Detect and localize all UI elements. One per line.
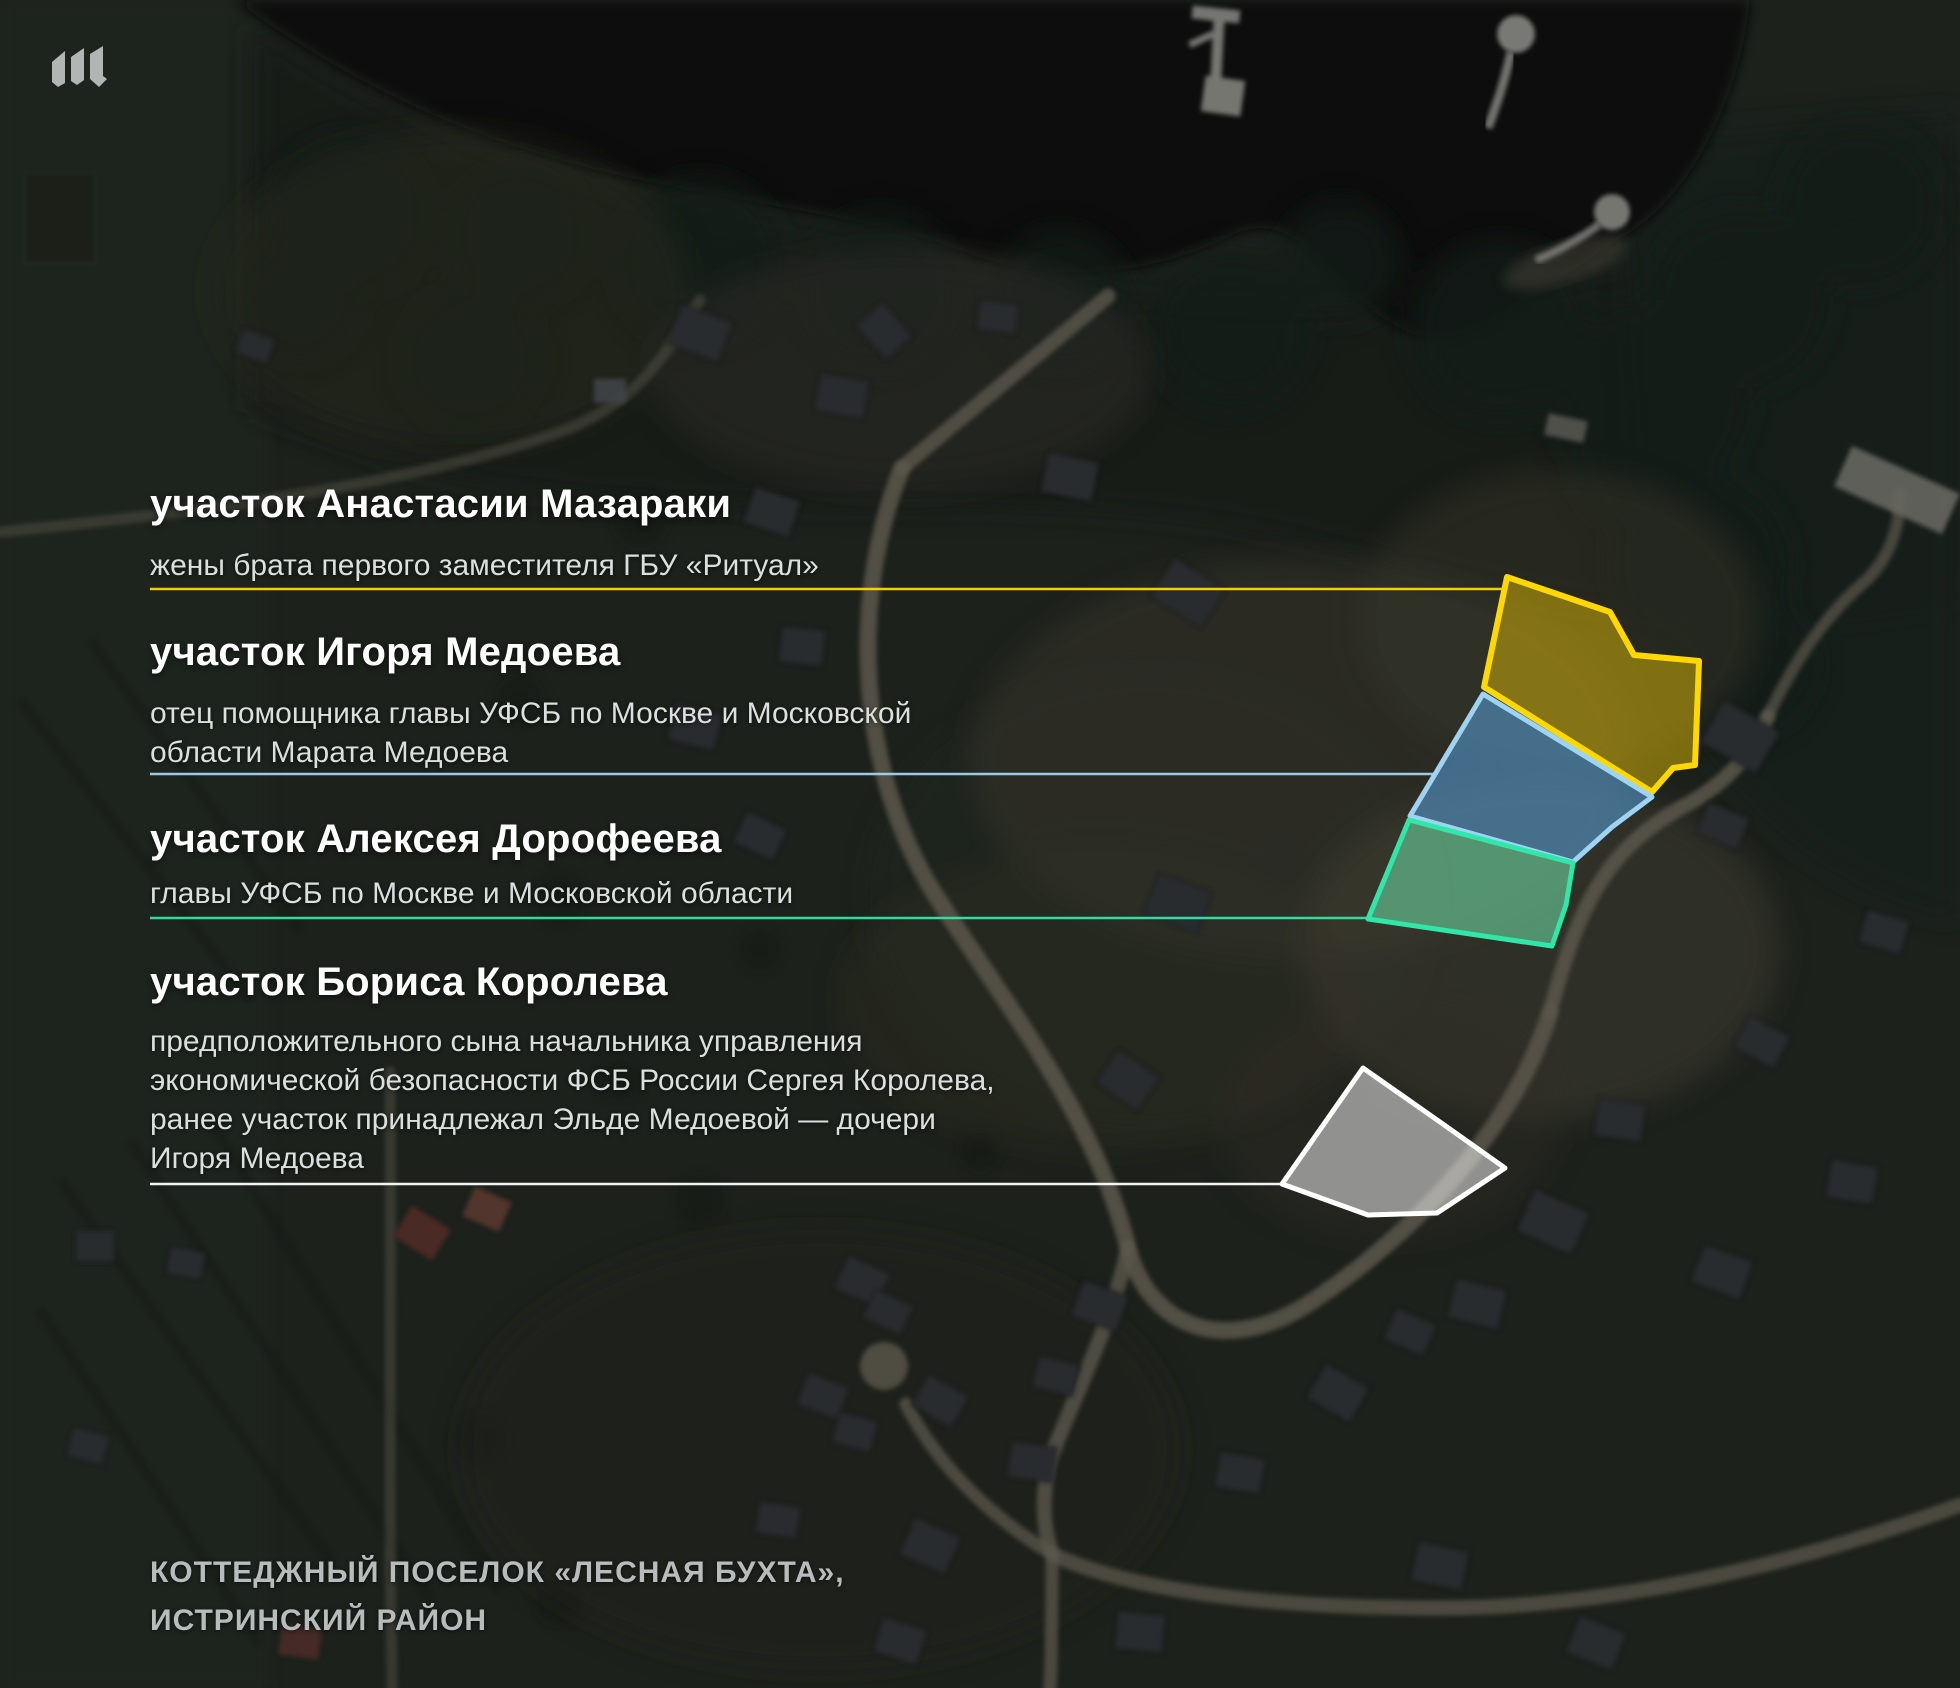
meduza-logo-glyph xyxy=(52,46,107,87)
label-block-dorofeev: участок Алексея Дорофеева главы УФСБ по … xyxy=(150,816,1110,913)
plot-title-medoev: участок Игоря Медоева xyxy=(150,629,1110,675)
label-block-korolev: участок Бориса Королева предположительно… xyxy=(150,959,1110,1178)
label-block-mazaraki: участок Анастасии Мазараки жены брата пе… xyxy=(150,481,1110,585)
label-block-medoev: участок Игоря Медоева отец помощника гла… xyxy=(150,629,1110,772)
settlement-caption: КОТТЕДЖНЫЙ ПОСЕЛОК «ЛЕСНАЯ БУХТА», ИСТРИ… xyxy=(150,1549,845,1645)
infographic: участок Анастасии Мазараки жены брата пе… xyxy=(0,0,1960,1688)
plot-title-korolev: участок Бориса Королева xyxy=(150,959,1110,1005)
plot-subtitle-dorofeev: главы УФСБ по Москве и Московской област… xyxy=(150,874,1110,913)
meduza-logo xyxy=(50,46,108,88)
plot-korolev-polygon xyxy=(1282,1068,1505,1215)
plot-subtitle-korolev: предположительного сына начальника управ… xyxy=(150,1022,1110,1178)
plot-subtitle-medoev: отец помощника главы УФСБ по Москве и Мо… xyxy=(150,694,1110,772)
plot-subtitle-mazaraki: жены брата первого заместителя ГБУ «Риту… xyxy=(150,546,1110,585)
plot-title-dorofeev: участок Алексея Дорофеева xyxy=(150,816,1110,862)
plot-title-mazaraki: участок Анастасии Мазараки xyxy=(150,481,1110,527)
